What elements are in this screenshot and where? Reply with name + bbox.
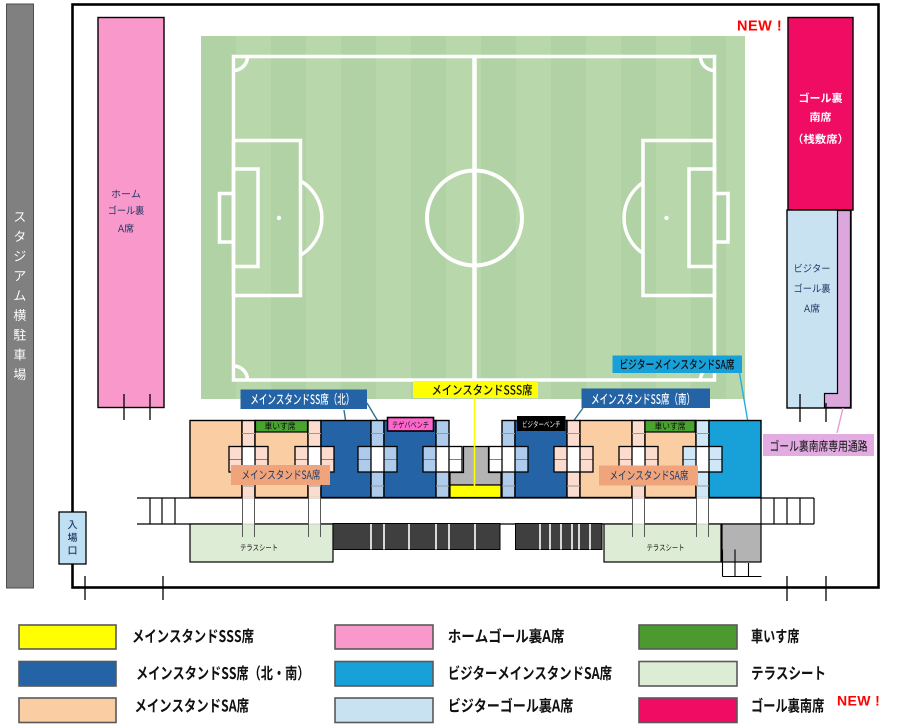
svg-text:NEW !: NEW ! — [737, 19, 782, 35]
svg-text:NEW !: NEW ! — [837, 693, 880, 709]
